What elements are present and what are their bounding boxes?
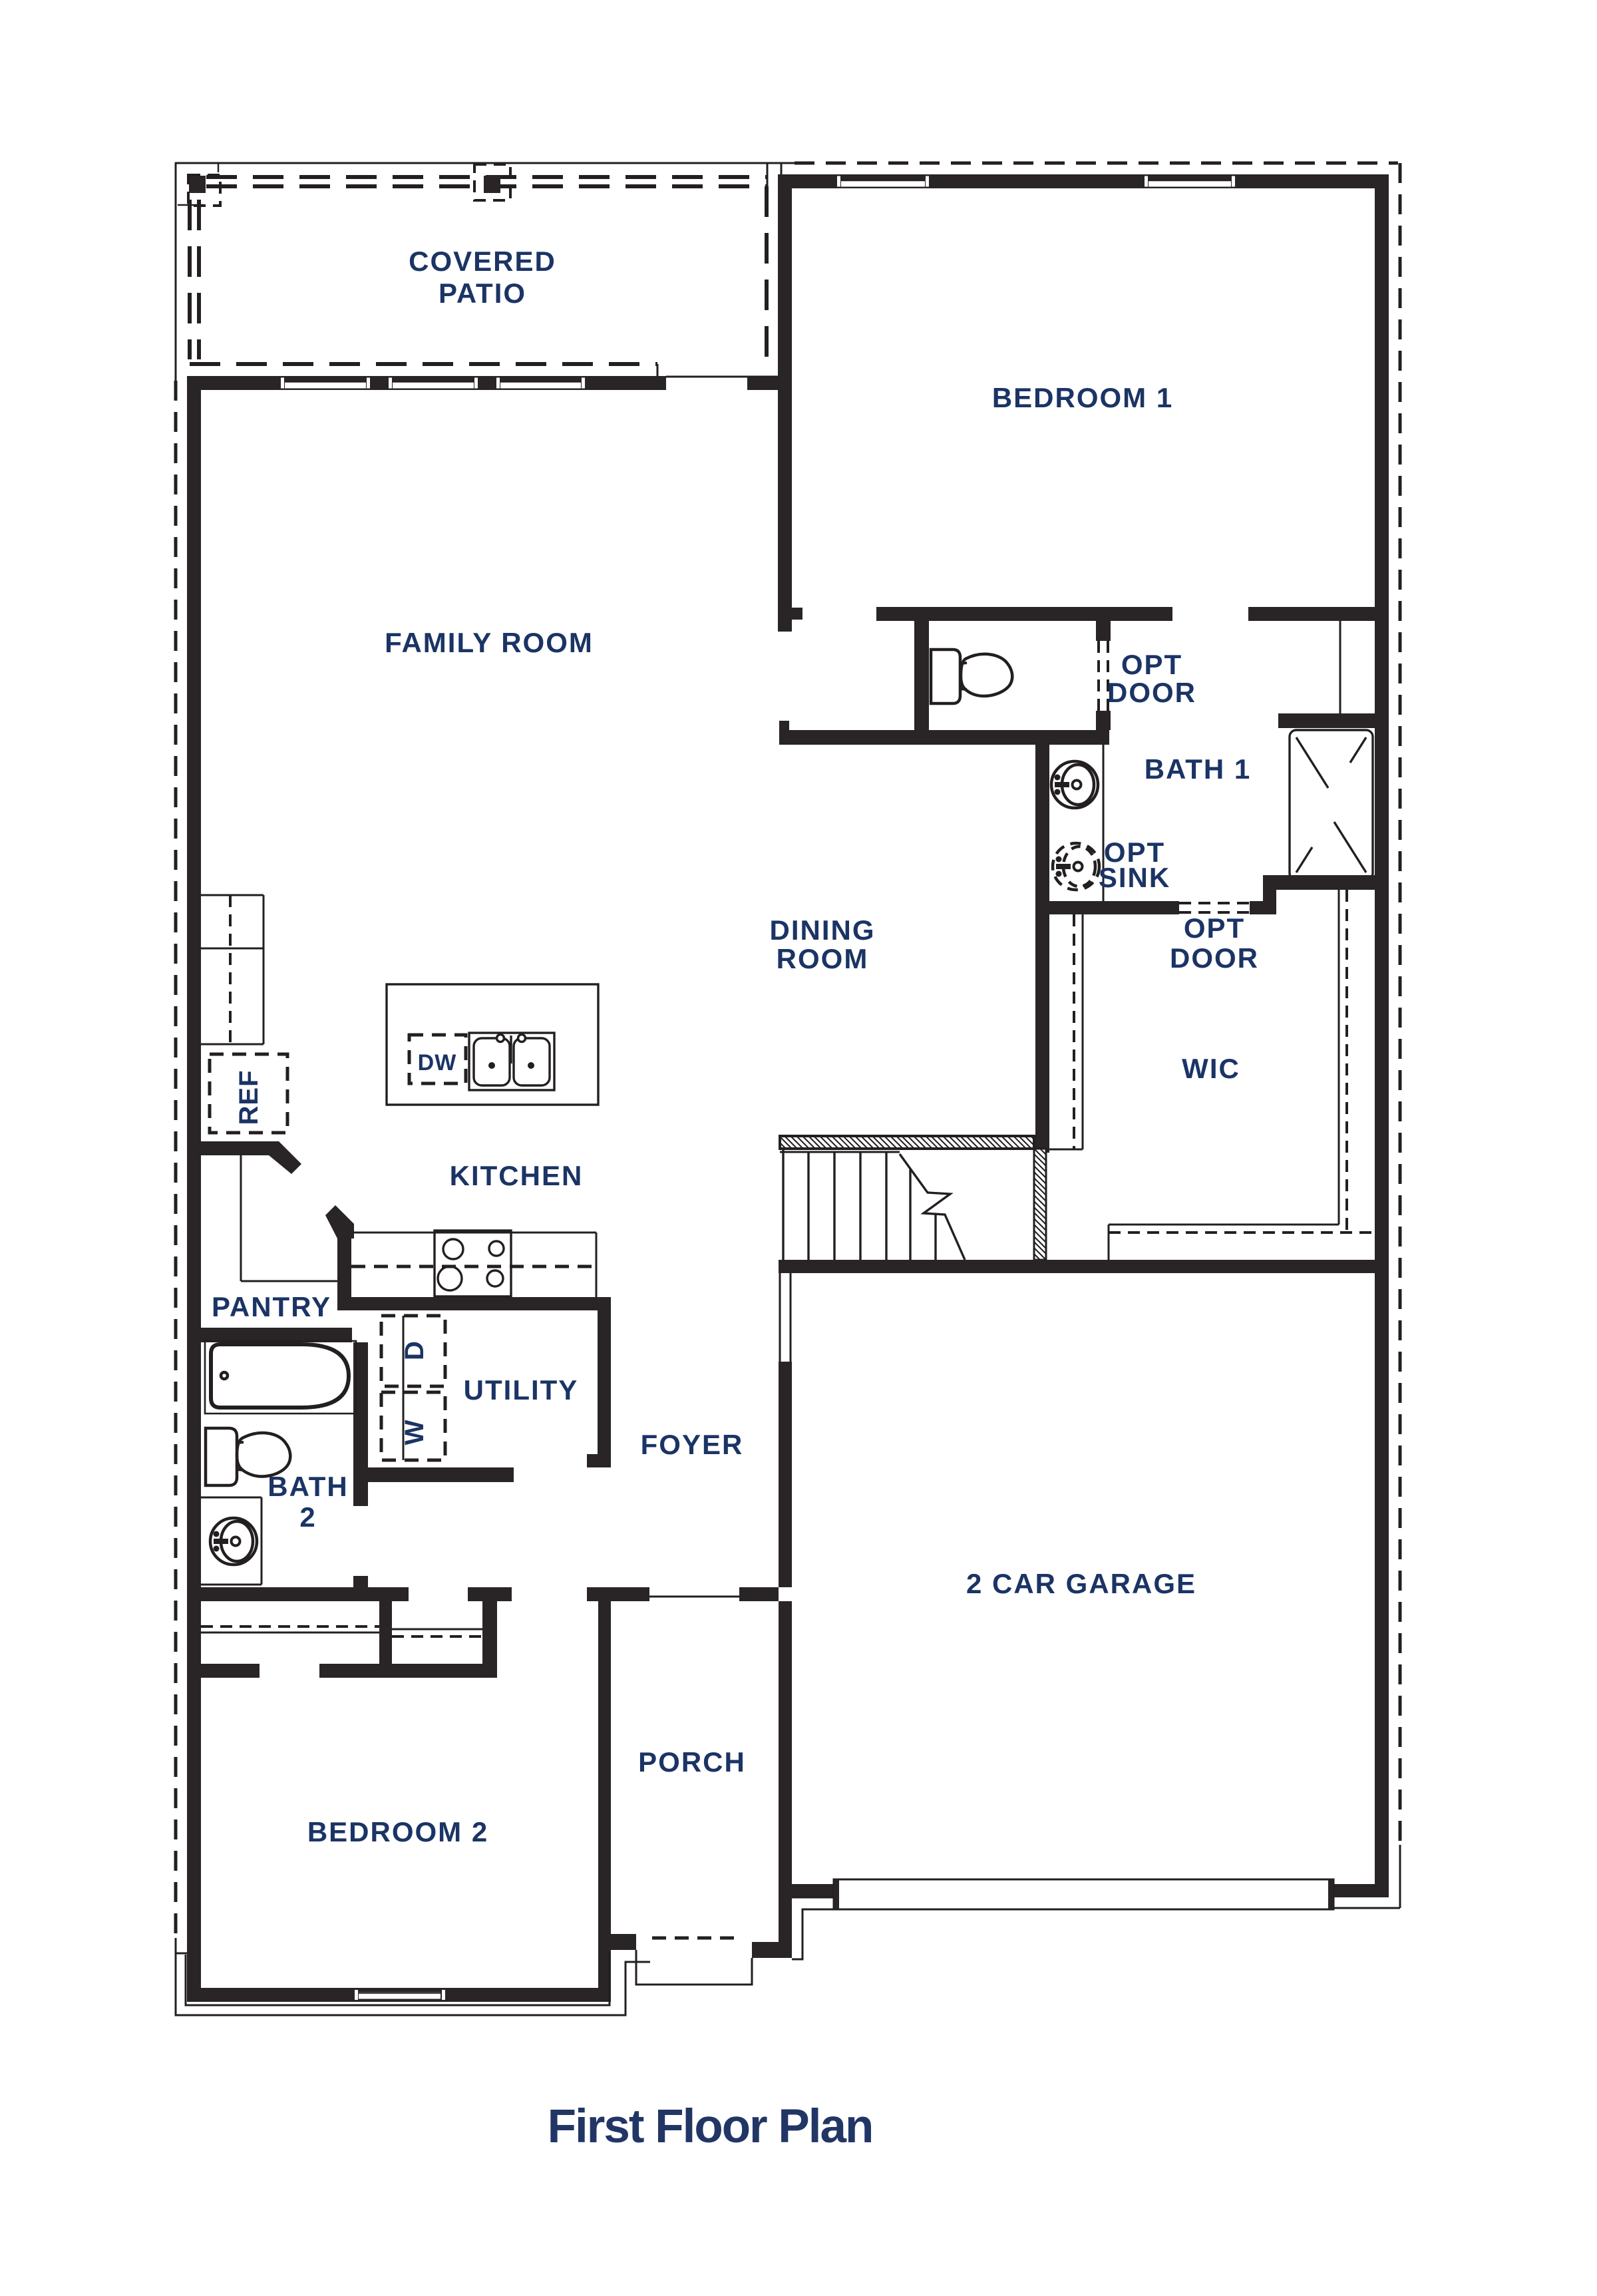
svg-text:BATH: BATH [267,1471,349,1502]
svg-text:PANTRY: PANTRY [212,1291,331,1322]
svg-text:REF: REF [234,1070,264,1125]
svg-text:DW: DW [418,1050,457,1075]
svg-text:COVERED: COVERED [409,246,556,277]
svg-text:SINK: SINK [1099,862,1170,893]
svg-text:KITCHEN: KITCHEN [450,1160,584,1191]
svg-text:DINING: DINING [770,914,876,946]
svg-text:ROOM: ROOM [777,943,869,974]
svg-text:FAMILY ROOM: FAMILY ROOM [385,627,594,658]
svg-text:W: W [400,1420,429,1445]
svg-text:BATH 1: BATH 1 [1145,753,1252,785]
svg-text:DOOR: DOOR [1170,942,1259,974]
svg-text:BEDROOM 2: BEDROOM 2 [307,1816,488,1847]
svg-text:2: 2 [299,1501,316,1533]
svg-text:WIC: WIC [1182,1053,1240,1084]
svg-text:PATIO: PATIO [439,278,526,309]
svg-text:BEDROOM 1: BEDROOM 1 [992,382,1173,413]
svg-text:PORCH: PORCH [638,1746,746,1778]
svg-text:D: D [400,1340,429,1360]
svg-text:OPT: OPT [1184,912,1245,944]
svg-text:FOYER: FOYER [641,1429,744,1460]
svg-text:OPT: OPT [1121,649,1182,680]
svg-text:2 CAR GARAGE: 2 CAR GARAGE [966,1568,1196,1599]
svg-text:First Floor Plan: First Floor Plan [548,2100,873,2153]
svg-text:DOOR: DOOR [1107,677,1196,708]
svg-text:UTILITY: UTILITY [464,1374,579,1406]
